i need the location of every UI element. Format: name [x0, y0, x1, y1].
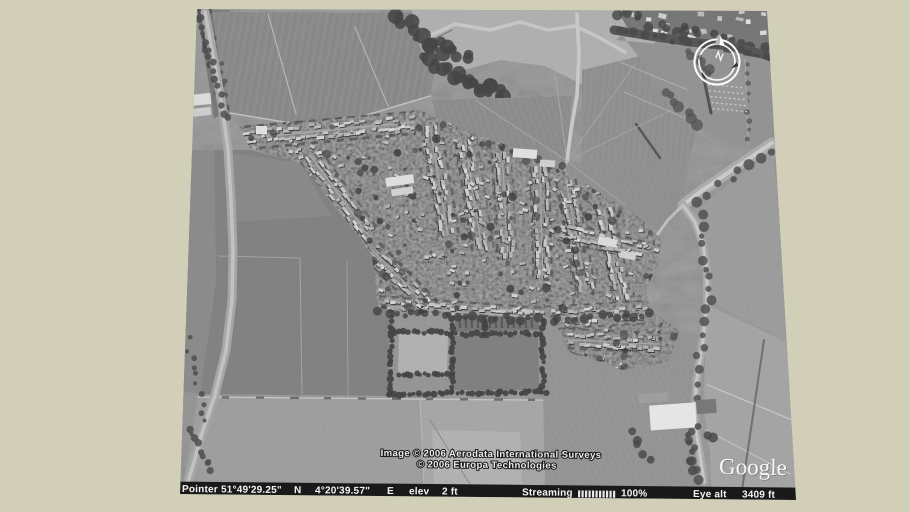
svg-text:© 2006 Europa Technologies: © 2006 Europa Technologies: [417, 459, 557, 471]
svg-text:4°20'39.57": 4°20'39.57": [315, 485, 370, 497]
svg-text:100%: 100%: [621, 488, 647, 499]
svg-text:51°49'29.25": 51°49'29.25": [221, 484, 282, 496]
svg-text:N: N: [294, 485, 302, 496]
svg-text:3409 ft: 3409 ft: [742, 489, 776, 500]
svg-text:E: E: [387, 486, 394, 497]
svg-text:elev: elev: [409, 486, 430, 497]
svg-text:2 ft: 2 ft: [442, 487, 458, 498]
svg-text:Pointer: Pointer: [182, 484, 218, 495]
svg-text:Eye alt: Eye alt: [693, 489, 727, 500]
svg-text:Streaming: Streaming: [522, 487, 573, 498]
svg-text:Google: Google: [719, 454, 787, 480]
